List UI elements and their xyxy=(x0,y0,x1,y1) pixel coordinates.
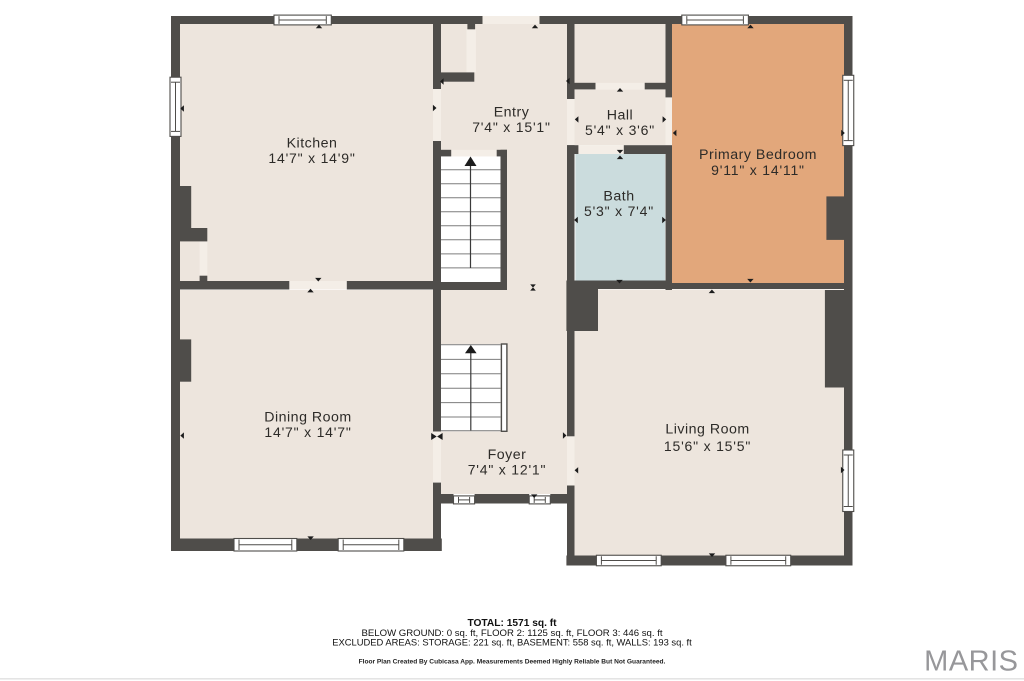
svg-text:Primary Bedroom: Primary Bedroom xyxy=(699,147,817,163)
svg-text:MARIS: MARIS xyxy=(924,646,1018,678)
svg-text:EXCLUDED AREAS: STORAGE: 221 s: EXCLUDED AREAS: STORAGE: 221 sq. ft, BAS… xyxy=(332,637,692,648)
svg-text:15'6" x 15'5": 15'6" x 15'5" xyxy=(664,438,751,454)
svg-text:7'4" x 12'1": 7'4" x 12'1" xyxy=(468,462,547,478)
svg-text:14'7" x 14'7": 14'7" x 14'7" xyxy=(264,424,351,440)
svg-text:Floor Plan Created By Cubicasa: Floor Plan Created By Cubicasa App. Meas… xyxy=(359,659,666,666)
svg-text:14'7" x 14'9": 14'7" x 14'9" xyxy=(268,150,355,166)
svg-text:5'4" x 3'6": 5'4" x 3'6" xyxy=(585,122,655,138)
svg-text:7'4" x 15'1": 7'4" x 15'1" xyxy=(472,119,551,135)
svg-text:Living Room: Living Room xyxy=(665,422,749,438)
svg-text:9'11" x 14'11": 9'11" x 14'11" xyxy=(711,162,805,178)
svg-text:5'3" x 7'4": 5'3" x 7'4" xyxy=(584,203,654,219)
